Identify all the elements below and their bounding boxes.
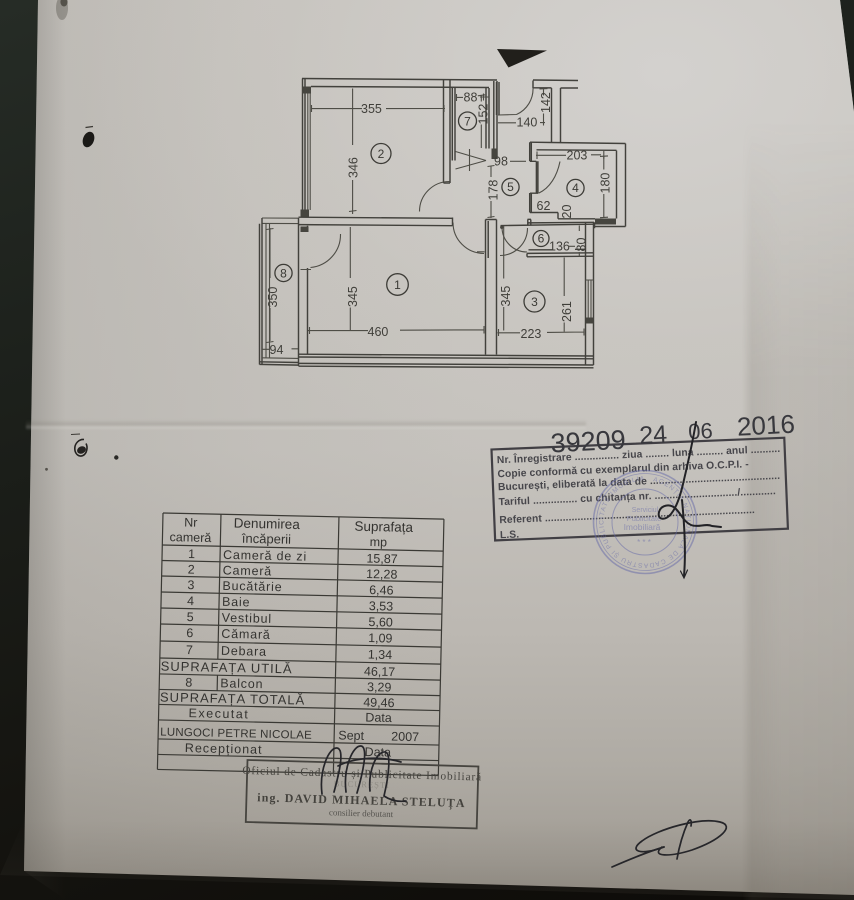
svg-text:24: 24: [639, 420, 668, 449]
svg-text:203: 203: [567, 149, 588, 163]
svg-text:Executat: Executat: [188, 706, 249, 721]
svg-text:80: 80: [575, 238, 589, 252]
svg-text:6: 6: [538, 232, 545, 246]
svg-text:98: 98: [494, 155, 508, 169]
svg-text:39209: 39209: [550, 425, 627, 459]
svg-text:Baie: Baie: [222, 595, 251, 610]
svg-text:6,46: 6,46: [369, 583, 394, 598]
svg-text:Cameră: Cameră: [223, 563, 273, 578]
svg-text:152: 152: [477, 104, 491, 125]
svg-text:8: 8: [185, 676, 193, 690]
svg-text:3,53: 3,53: [369, 599, 394, 614]
svg-text:Cămară: Cămară: [221, 627, 271, 642]
svg-text:încăperii: încăperii: [241, 531, 292, 547]
svg-text:2016: 2016: [736, 409, 795, 442]
svg-text:SUPRAFAȚA TOTALĂ: SUPRAFAȚA TOTALĂ: [160, 689, 306, 707]
svg-text:49,46: 49,46: [363, 695, 395, 710]
svg-text:346: 346: [347, 157, 361, 178]
svg-text:Balcon: Balcon: [220, 676, 263, 691]
svg-text:Serviciul: Serviciul: [632, 507, 659, 514]
svg-text:cameră: cameră: [169, 530, 211, 545]
svg-text:261: 261: [560, 301, 574, 322]
svg-text:Data: Data: [364, 745, 391, 760]
svg-text:2: 2: [188, 563, 196, 577]
svg-text:8: 8: [280, 267, 287, 281]
svg-text:Data: Data: [365, 710, 392, 725]
svg-text:Vestibul: Vestibul: [222, 611, 272, 626]
svg-text:94: 94: [270, 343, 284, 357]
svg-text:consilier debutant: consilier debutant: [329, 807, 394, 819]
svg-text:Debara: Debara: [221, 644, 267, 659]
svg-text:Imobiliară: Imobiliară: [624, 522, 661, 532]
svg-text:Denumirea: Denumirea: [234, 516, 301, 532]
svg-text:Bucătărie: Bucătărie: [222, 579, 282, 594]
svg-text:140: 140: [517, 116, 538, 130]
svg-text:136: 136: [549, 240, 570, 254]
svg-text:355: 355: [361, 102, 382, 116]
svg-text:5,60: 5,60: [368, 615, 393, 630]
svg-text:SUPRAFAȚA UTILĂ: SUPRAFAȚA UTILĂ: [160, 658, 292, 676]
svg-text:345: 345: [499, 286, 513, 307]
svg-text:1,34: 1,34: [368, 648, 393, 663]
svg-text:142: 142: [539, 92, 553, 113]
svg-text:5: 5: [187, 610, 195, 624]
svg-text:1: 1: [394, 278, 401, 292]
svg-text:223: 223: [521, 327, 542, 341]
svg-text:12,28: 12,28: [366, 567, 398, 582]
svg-text:3: 3: [187, 578, 195, 592]
svg-text:Nr: Nr: [184, 515, 198, 529]
svg-text:4: 4: [187, 594, 195, 608]
svg-text:88: 88: [464, 91, 478, 105]
svg-text:15,87: 15,87: [366, 551, 398, 566]
svg-text:mp: mp: [370, 535, 388, 549]
svg-text:06: 06: [688, 418, 714, 444]
svg-text:460: 460: [368, 325, 389, 339]
svg-text:2007: 2007: [391, 730, 419, 745]
svg-text:Cameră de zi: Cameră de zi: [223, 548, 307, 564]
svg-text:7: 7: [186, 643, 194, 657]
svg-text:Sept: Sept: [338, 728, 365, 743]
svg-text:345: 345: [346, 286, 360, 307]
svg-text:L.S.: L.S.: [500, 529, 520, 541]
svg-text:Suprafața: Suprafața: [354, 519, 413, 535]
svg-text:178: 178: [487, 180, 501, 201]
svg-text:BUCUREȘTI: BUCUREȘTI: [334, 778, 390, 790]
svg-text:* * *: * * *: [637, 538, 651, 547]
svg-text:6: 6: [186, 626, 194, 640]
svg-text:20: 20: [560, 205, 574, 219]
svg-text:62: 62: [537, 199, 551, 213]
svg-text:350: 350: [266, 287, 280, 308]
svg-text:1,09: 1,09: [368, 631, 393, 646]
svg-text:3,29: 3,29: [367, 680, 392, 695]
svg-text:4: 4: [572, 181, 579, 195]
svg-text:5: 5: [507, 180, 514, 194]
svg-text:Recepționat: Recepționat: [185, 741, 263, 757]
svg-text:1: 1: [188, 547, 196, 561]
svg-text:46,17: 46,17: [364, 664, 396, 679]
svg-text:180: 180: [599, 173, 613, 194]
svg-text:7: 7: [464, 115, 471, 129]
svg-text:3: 3: [531, 295, 538, 309]
svg-text:2: 2: [378, 147, 385, 161]
